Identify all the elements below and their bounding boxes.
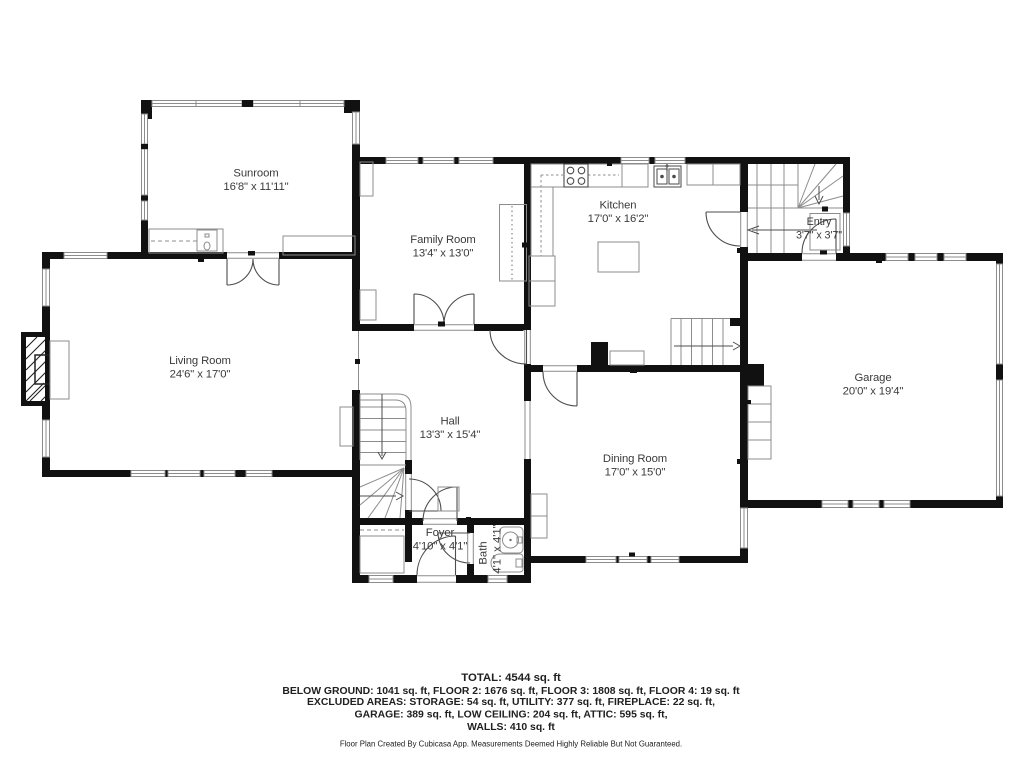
svg-text:13'3" x 15'4": 13'3" x 15'4" bbox=[420, 429, 481, 441]
svg-text:Garage: Garage bbox=[854, 372, 891, 384]
svg-text:Family Room: Family Room bbox=[410, 234, 475, 246]
svg-text:4'1" x 4'1": 4'1" x 4'1" bbox=[492, 524, 504, 573]
svg-text:Entry: Entry bbox=[807, 216, 832, 228]
svg-text:16'8" x 11'11": 16'8" x 11'11" bbox=[223, 181, 288, 193]
svg-text:4'10" x 4'1": 4'10" x 4'1" bbox=[413, 541, 468, 553]
svg-text:EXCLUDED AREAS: STORAGE: 54 sq: EXCLUDED AREAS: STORAGE: 54 sq. ft, UTIL… bbox=[307, 697, 715, 708]
svg-text:17'0" x 15'0": 17'0" x 15'0" bbox=[605, 467, 666, 479]
svg-text:TOTAL: 4544 sq. ft: TOTAL: 4544 sq. ft bbox=[461, 672, 561, 684]
svg-text:Hall: Hall bbox=[440, 416, 459, 428]
svg-text:24'6" x 17'0": 24'6" x 17'0" bbox=[170, 369, 231, 381]
svg-text:13'4" x 13'0": 13'4" x 13'0" bbox=[413, 248, 474, 260]
svg-text:Bath: Bath bbox=[478, 541, 490, 564]
svg-text:20'0" x 19'4": 20'0" x 19'4" bbox=[843, 386, 904, 398]
svg-text:Foyer: Foyer bbox=[426, 527, 455, 539]
svg-text:17'0" x 16'2": 17'0" x 16'2" bbox=[588, 213, 649, 225]
svg-text:Floor Plan Created By Cubicasa: Floor Plan Created By Cubicasa App. Meas… bbox=[340, 740, 682, 749]
svg-text:3'7" x 3'7": 3'7" x 3'7" bbox=[796, 230, 842, 242]
svg-text:WALLS: 410 sq. ft: WALLS: 410 sq. ft bbox=[467, 722, 555, 733]
svg-text:Dining Room: Dining Room bbox=[603, 453, 667, 465]
svg-text:BELOW GROUND: 1041 sq. ft, FLO: BELOW GROUND: 1041 sq. ft, FLOOR 2: 1676… bbox=[282, 686, 740, 697]
svg-text:Kitchen: Kitchen bbox=[600, 200, 637, 212]
svg-text:GARAGE: 389 sq. ft, LOW CEILIN: GARAGE: 389 sq. ft, LOW CEILING: 204 sq.… bbox=[355, 710, 668, 721]
svg-text:Living Room: Living Room bbox=[169, 355, 231, 367]
svg-text:Sunroom: Sunroom bbox=[233, 168, 278, 180]
